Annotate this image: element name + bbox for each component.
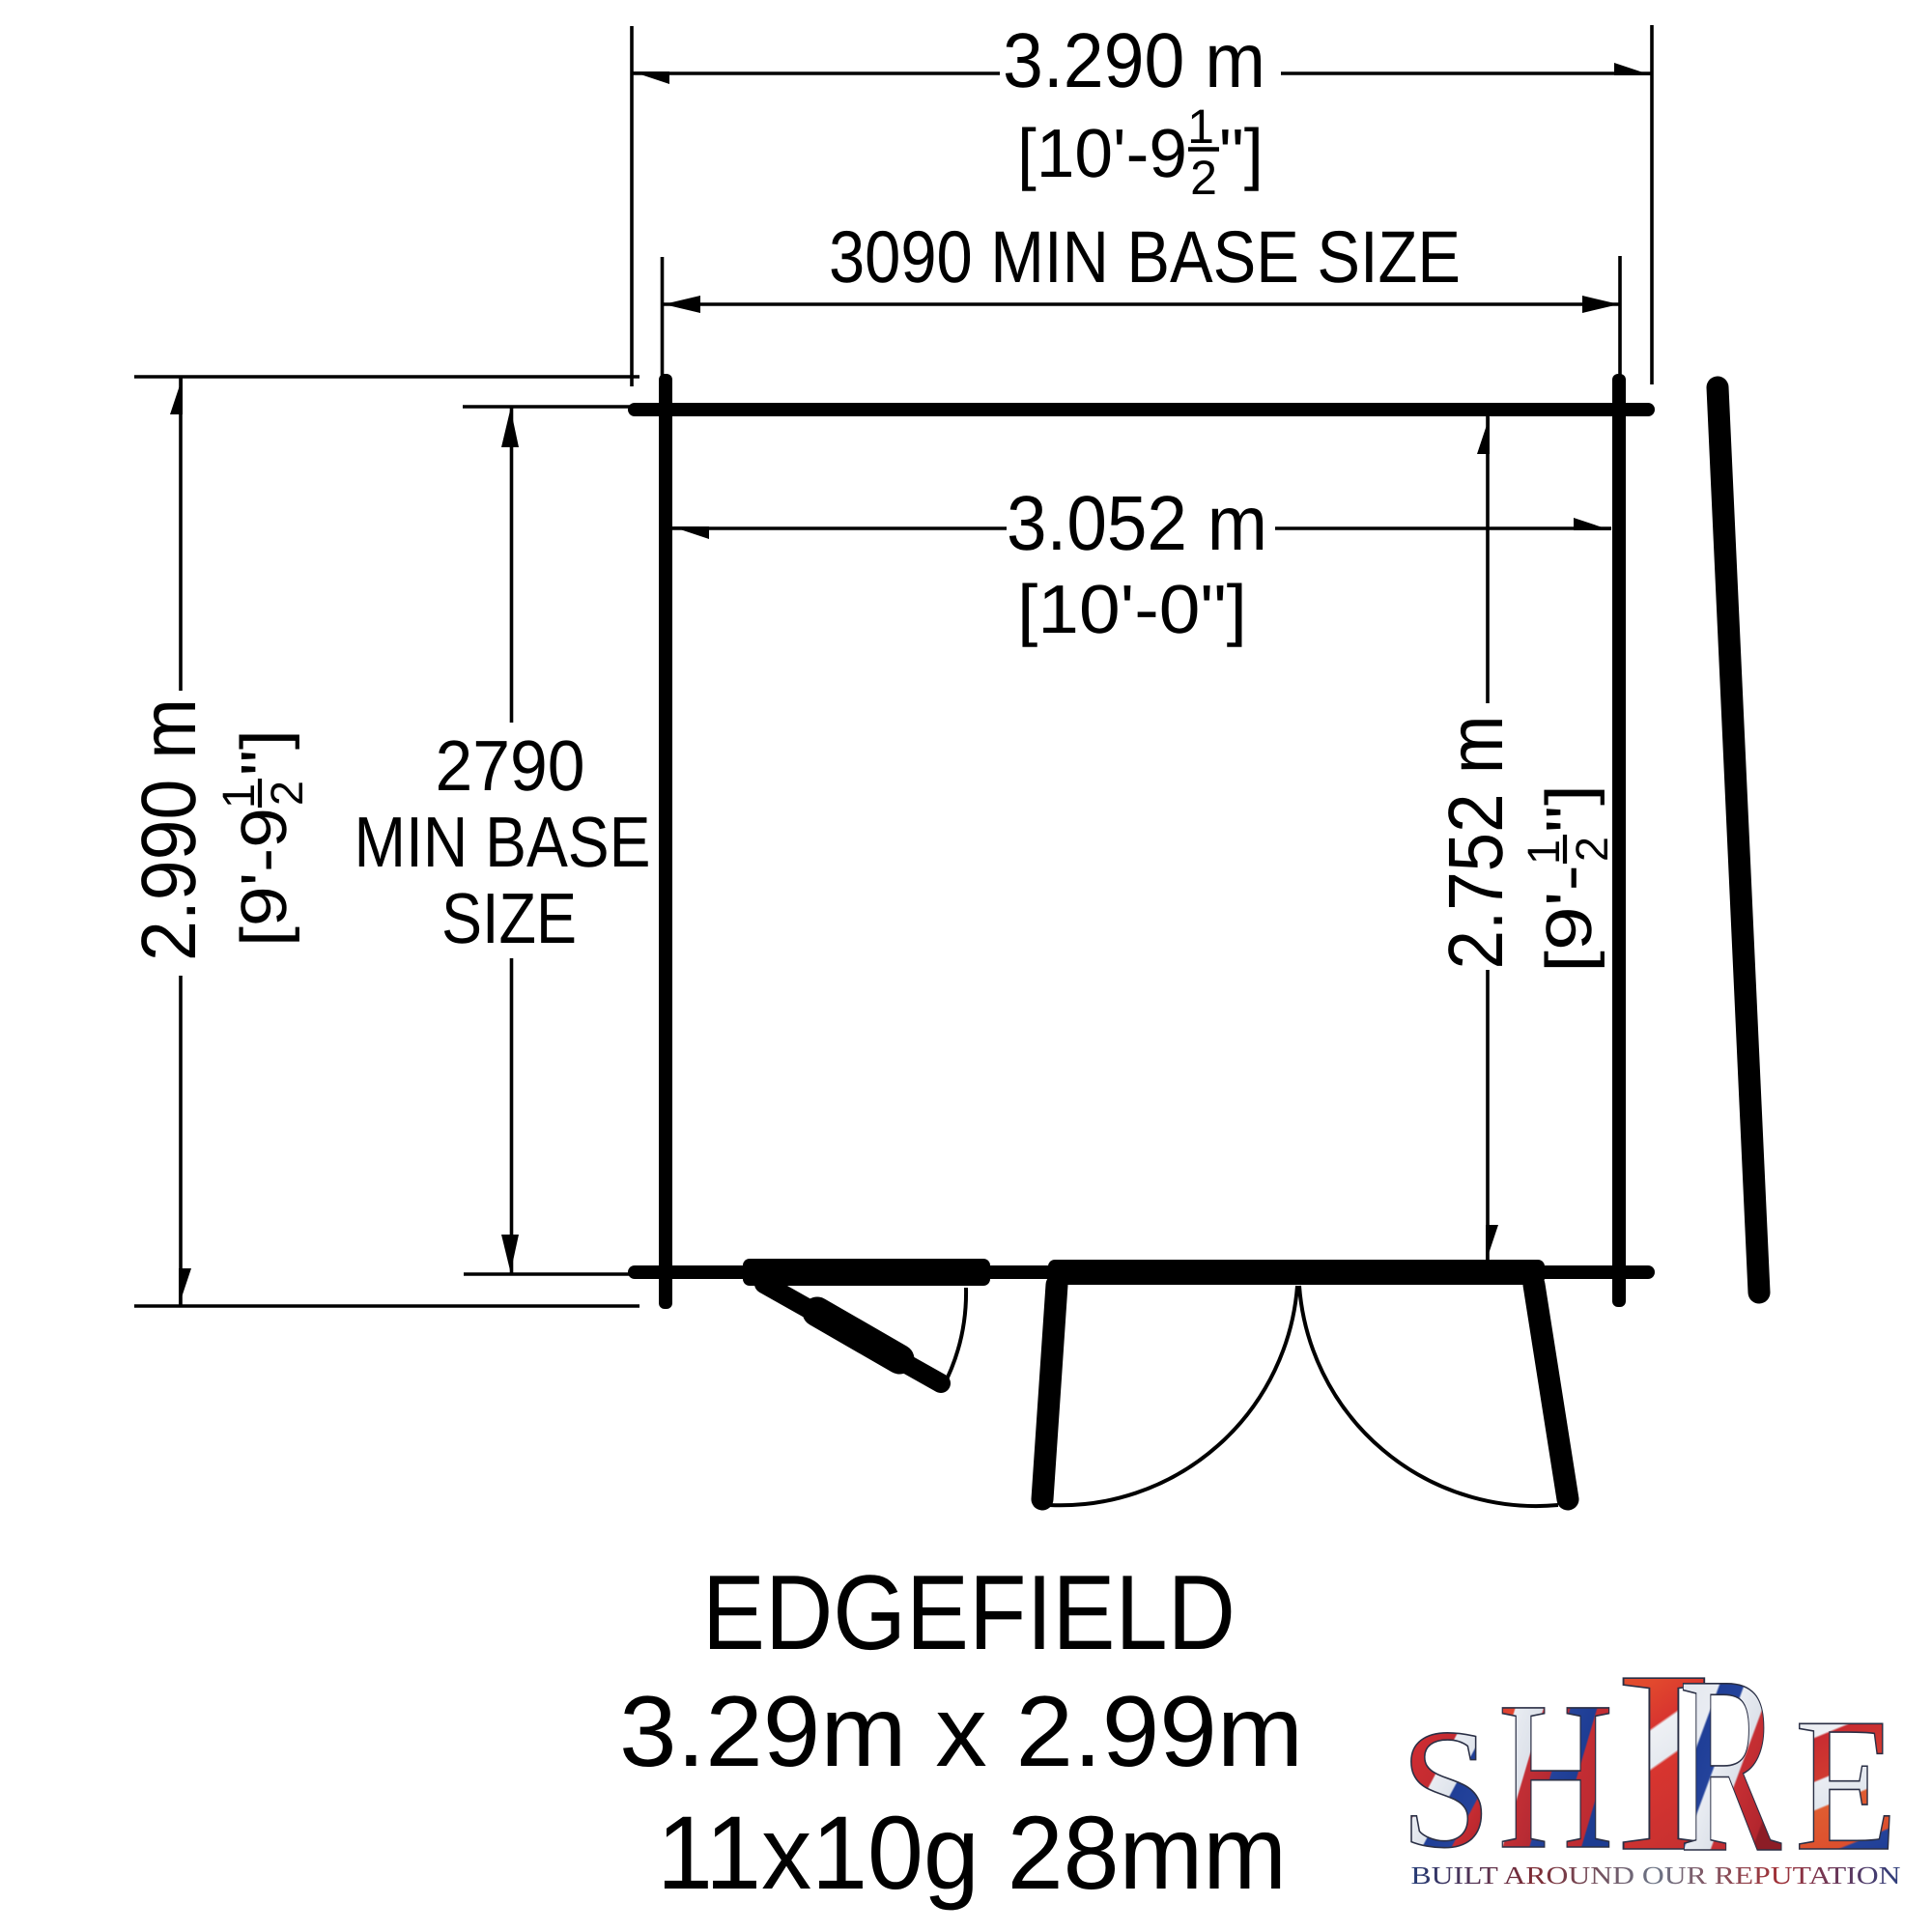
svg-text:2: 2	[1190, 151, 1217, 205]
svg-text:1: 1	[1187, 99, 1214, 154]
svg-text:1: 1	[213, 783, 264, 809]
svg-text:BUILT AROUND OUR REPUTATION: BUILT AROUND OUR REPUTATION	[1411, 1861, 1901, 1889]
svg-text:[10'-0"]: [10'-0"]	[1017, 572, 1247, 648]
svg-text:E: E	[1795, 1679, 1898, 1890]
svg-text:1: 1	[1518, 839, 1569, 865]
svg-text:11x10g 28mm: 11x10g 28mm	[657, 1794, 1287, 1911]
svg-text:EDGEFIELD: EDGEFIELD	[702, 1553, 1236, 1672]
svg-text:2: 2	[1566, 837, 1617, 862]
svg-text:MIN BASE: MIN BASE	[355, 802, 651, 882]
svg-text:2.752 m: 2.752 m	[1433, 716, 1519, 970]
svg-text:3090 MIN BASE SIZE: 3090 MIN BASE SIZE	[829, 216, 1461, 298]
svg-text:[9'-: [9'-	[1533, 865, 1605, 973]
svg-text:"]: "]	[1219, 116, 1264, 192]
svg-text:2790: 2790	[436, 725, 585, 806]
svg-text:2.990 m: 2.990 m	[126, 698, 212, 961]
svg-text:[9'-9: [9'-9	[228, 808, 300, 947]
svg-text:[10'-9: [10'-9	[1017, 116, 1187, 192]
svg-text:3.052 m: 3.052 m	[1007, 480, 1267, 566]
svg-text:3.290 m: 3.290 m	[1003, 17, 1265, 103]
svg-text:2: 2	[261, 781, 312, 806]
svg-text:S: S	[1401, 1694, 1492, 1884]
svg-text:"]: "]	[1533, 784, 1605, 833]
svg-text:SIZE: SIZE	[441, 878, 577, 958]
svg-text:"]: "]	[228, 729, 300, 776]
svg-text:3.29m x 2.99m: 3.29m x 2.99m	[619, 1676, 1303, 1788]
svg-text:H: H	[1498, 1658, 1614, 1893]
